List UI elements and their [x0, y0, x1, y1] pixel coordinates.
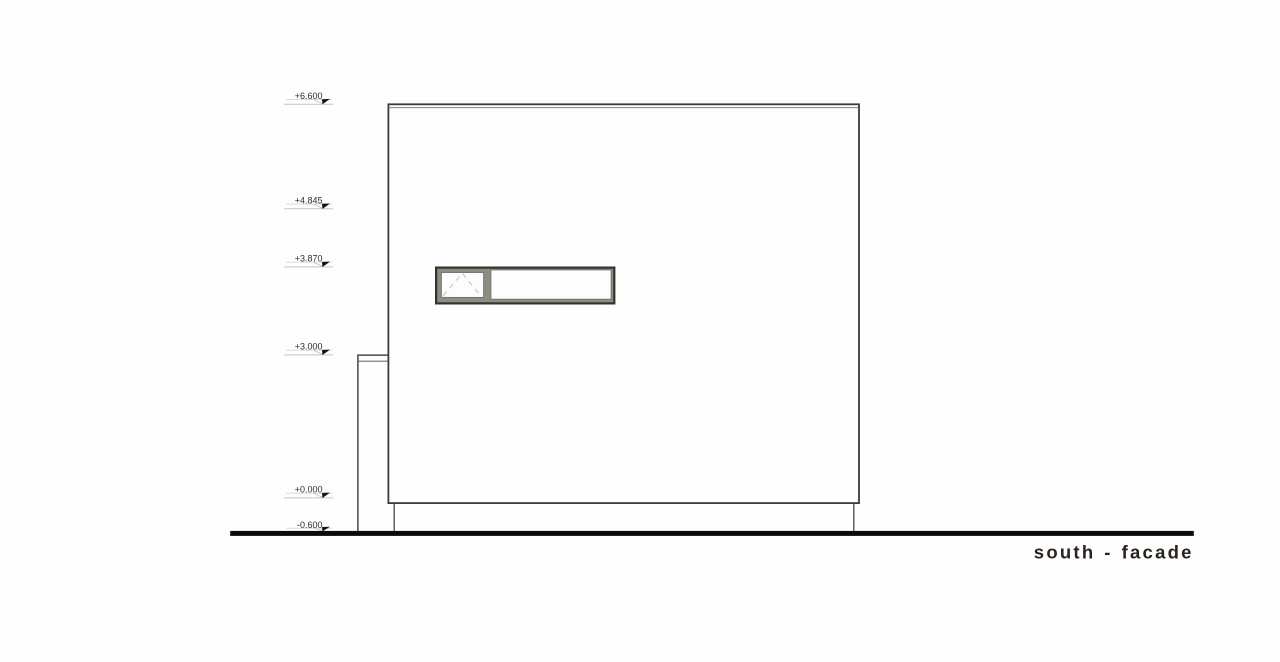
svg-text:+6.600: +6.600 [295, 91, 323, 101]
svg-text:+0.000: +0.000 [295, 485, 323, 495]
svg-text:+3.870: +3.870 [295, 254, 323, 264]
svg-text:-0.600: -0.600 [297, 520, 323, 530]
svg-text:+4.845: +4.845 [295, 196, 323, 206]
svg-text:+3.000: +3.000 [295, 342, 323, 352]
svg-text:south - facade: south - facade [1034, 542, 1194, 563]
